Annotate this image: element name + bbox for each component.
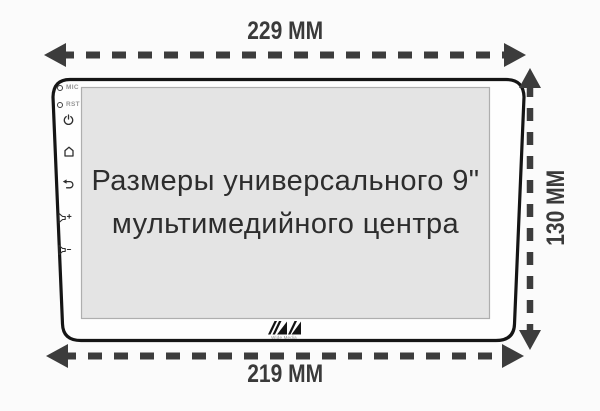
arrowhead-up-icon xyxy=(519,68,541,88)
arrowhead-left-icon xyxy=(46,344,68,368)
screen-caption-line1: Размеры универсального 9" xyxy=(92,160,480,203)
screen-caption-line2: мультимедийного центра xyxy=(112,203,459,246)
arrowhead-right-icon xyxy=(504,43,526,67)
volume-up-icon xyxy=(58,212,72,224)
screen-caption: Размеры универсального 9" мультимедийног… xyxy=(81,87,490,319)
arrowhead-right-icon xyxy=(502,344,524,368)
mic-led: MIC xyxy=(57,84,79,91)
home-icon xyxy=(63,146,75,157)
dimension-label-height-right: 130 MM xyxy=(541,138,571,278)
reset-led: RST xyxy=(57,101,80,108)
dimension-label-width-bottom: 219 MM xyxy=(135,360,435,389)
dimension-arrow-top xyxy=(44,43,526,67)
diagram-canvas: 229 MM 130 MM 219 MM Размеры универсальн… xyxy=(0,0,600,411)
led-dot-icon xyxy=(57,102,63,108)
reset-label: RST xyxy=(66,101,80,108)
dimension-label-width-top: 229 MM xyxy=(135,17,435,46)
arrowhead-left-icon xyxy=(44,43,66,67)
wide-media-brand-text: Wide Media xyxy=(259,335,309,340)
arrowhead-down-icon xyxy=(519,330,541,350)
mic-label: MIC xyxy=(66,84,79,91)
power-icon xyxy=(63,114,74,126)
back-icon xyxy=(62,179,75,189)
led-dot-icon xyxy=(57,85,63,91)
volume-down-icon xyxy=(58,244,72,256)
